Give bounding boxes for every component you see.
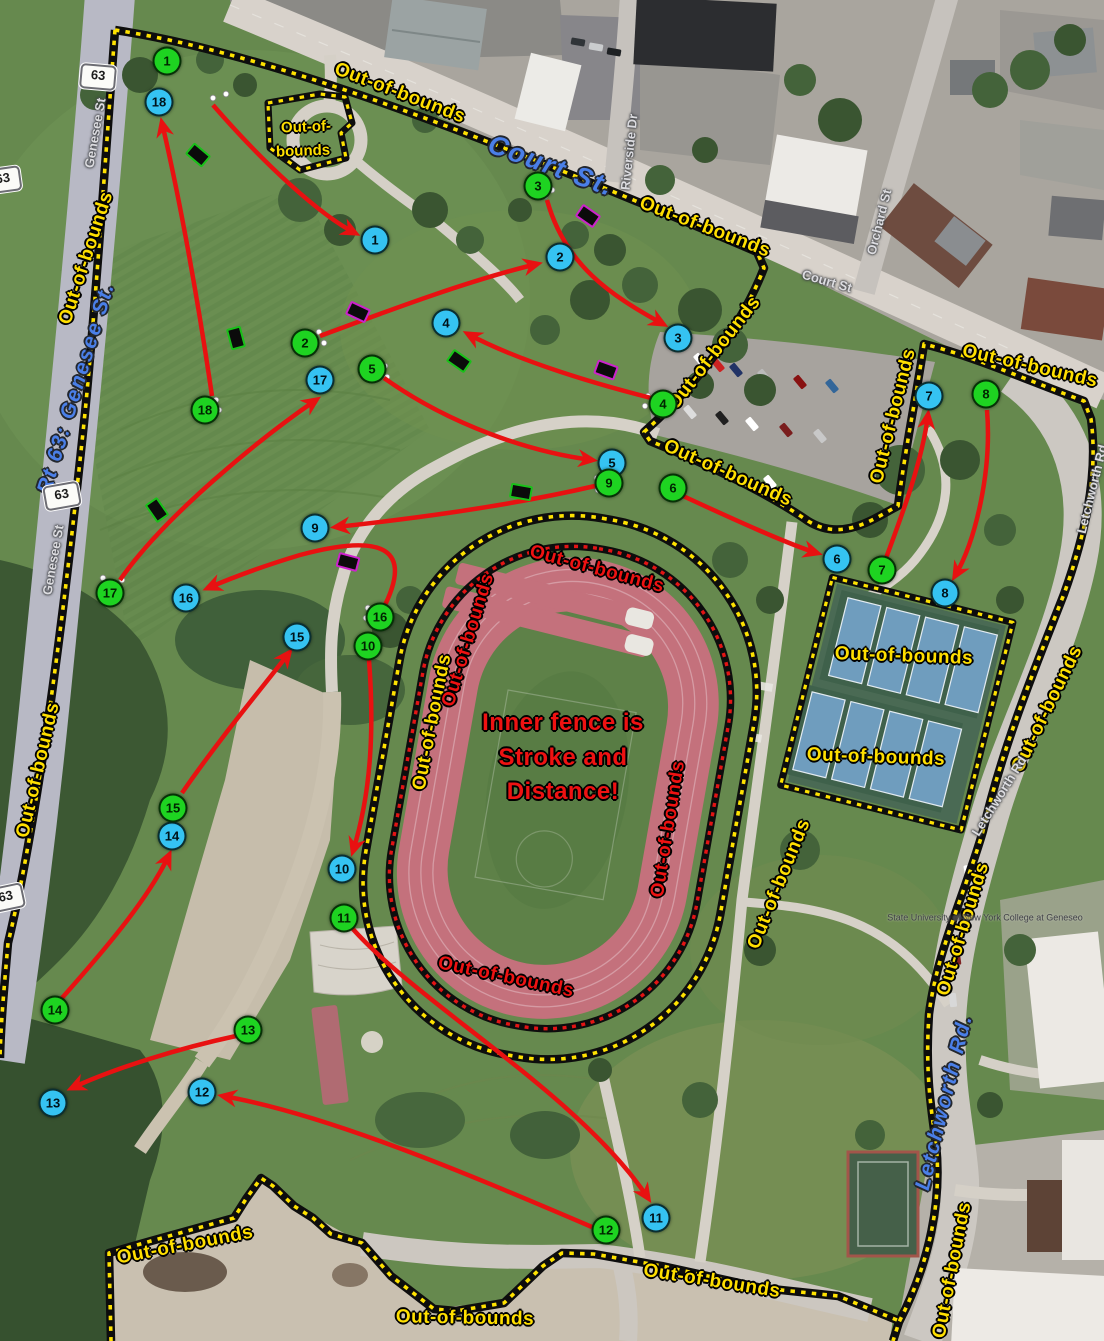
basket-marker-10: 10 [354, 632, 383, 661]
route-63-shield: 63 [79, 63, 117, 91]
street-letchworth-small-2: Letchworth Rd [969, 754, 1028, 838]
oob-letchworth-lower: Out-of-bounds [929, 1200, 974, 1339]
basket-marker-13: 13 [234, 1016, 263, 1045]
tee-marker-2: 2 [546, 243, 575, 272]
tee-pad [185, 142, 211, 168]
tee-marker-18: 18 [145, 88, 174, 117]
tee-marker-11: 11 [642, 1204, 671, 1233]
tee-marker-15: 15 [283, 623, 312, 652]
tee-marker-9: 9 [301, 514, 330, 543]
tee-marker-17: 17 [306, 366, 335, 395]
oob-court-south: Out-of-bounds [637, 193, 773, 260]
oob-track-east-inner: Out-of-bounds [648, 759, 688, 899]
oob-track-west-inner: Out-of-bounds [439, 571, 498, 709]
route-63-shield: 63 [0, 165, 23, 195]
basket-marker-11: 11 [330, 904, 359, 933]
tee-pad [145, 497, 170, 524]
basket-marker-7: 7 [868, 556, 897, 585]
tee-pad [345, 301, 371, 324]
oob-track-outer-southeast: Out-of-bounds [744, 816, 813, 951]
basket-marker-9: 9 [595, 469, 624, 498]
basket-marker-15: 15 [159, 794, 188, 823]
tee-pad [509, 483, 533, 502]
basket-marker-14: 14 [41, 996, 70, 1025]
tee-marker-12: 12 [188, 1078, 217, 1107]
street-riverside-dr: Riverside Dr [619, 113, 640, 191]
oob-island-line-2: bounds [276, 143, 331, 160]
basket-marker-4: 4 [649, 390, 678, 419]
route-63-shield: 63 [42, 481, 82, 512]
oob-letchworth-mid: Out-of-bounds [934, 860, 993, 998]
basket-marker-18: 18 [191, 396, 220, 425]
tee-marker-13: 13 [39, 1089, 68, 1118]
oob-bottom-left: Out-of-bounds [115, 1222, 254, 1267]
track-note-line-2: Stroke and [498, 746, 627, 770]
basket-marker-1: 1 [153, 47, 182, 76]
oob-bottom-road: Out-of-bounds [642, 1261, 782, 1301]
basket-marker-12: 12 [592, 1216, 621, 1245]
basket-marker-2: 2 [291, 329, 320, 358]
route-63-shield: 63 [0, 882, 26, 914]
tee-marker-10: 10 [328, 855, 357, 884]
tee-marker-8: 8 [931, 579, 960, 608]
tee-marker-7: 7 [915, 382, 944, 411]
tee-marker-14: 14 [158, 822, 187, 851]
oob-island-line-1: Out-of- [281, 119, 331, 136]
tee-pad [593, 359, 619, 381]
oob-tennis-lower: Out-of-bounds [807, 745, 946, 769]
oob-tennis-upper: Out-of-bounds [835, 644, 974, 668]
basket-marker-6: 6 [659, 474, 688, 503]
street-letchworth-main: Letchworth Rd. [912, 1012, 976, 1193]
tee-pad [226, 325, 246, 350]
oob-bottom-center: Out-of-bounds [396, 1307, 535, 1328]
street-genesee-top: Genesee St [82, 97, 107, 169]
basket-marker-8: 8 [972, 380, 1001, 409]
basket-marker-17: 17 [96, 579, 125, 608]
tee-pad [446, 349, 473, 374]
street-court-small: Court St [801, 268, 854, 295]
college-label: State University of New York College at … [887, 914, 1083, 923]
track-note-line-1: Inner fence is [482, 711, 644, 735]
oob-track-south-inner: Out-of-bounds [436, 953, 575, 1000]
label-layer: Out-of-boundsOut-of-boundsOut-of-boundsO… [0, 0, 1104, 1341]
oob-genesee-lower: Out-of-bounds [13, 700, 63, 839]
basket-marker-5: 5 [358, 355, 387, 384]
street-orchard-st: Orchard St [865, 188, 894, 256]
oob-top-court: Out-of-bounds [332, 59, 468, 126]
tee-marker-16: 16 [172, 584, 201, 613]
disc-golf-course-map: Out-of-boundsOut-of-boundsOut-of-boundsO… [0, 0, 1104, 1341]
street-letchworth-small-1: Letchworth Rd [1075, 443, 1104, 534]
oob-parking-east: Out-of-bounds [867, 347, 919, 486]
tee-marker-6: 6 [823, 545, 852, 574]
oob-track-north: Out-of-bounds [528, 542, 667, 596]
basket-marker-3: 3 [524, 172, 553, 201]
tee-pad [335, 552, 360, 572]
tee-pad [575, 204, 602, 229]
basket-marker-16: 16 [366, 603, 395, 632]
track-note-line-3: Distance! [507, 780, 620, 804]
oob-parking-west: Out-of-bounds [664, 293, 764, 414]
tee-marker-1: 1 [361, 226, 390, 255]
street-genesee-mid: Genesee St [40, 524, 65, 596]
tee-marker-4: 4 [432, 309, 461, 338]
tee-marker-3: 3 [664, 324, 693, 353]
